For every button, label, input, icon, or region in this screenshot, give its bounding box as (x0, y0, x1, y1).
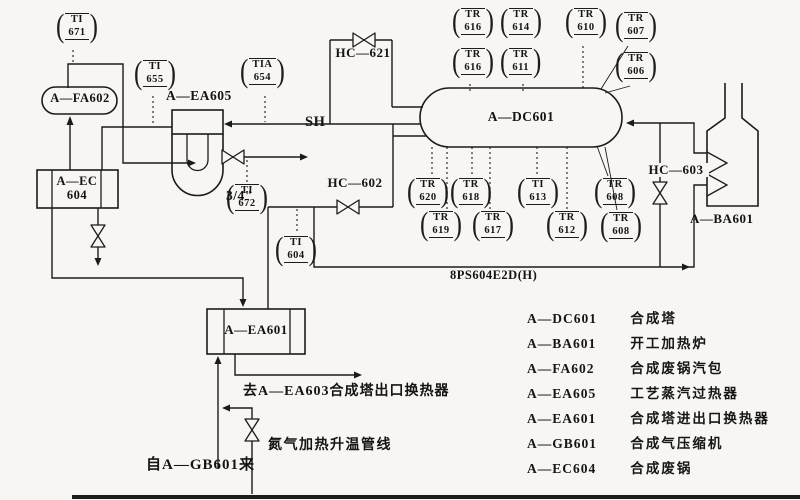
balloon-paren-right: ) (551, 175, 559, 208)
instrument-tag: TR (463, 179, 479, 192)
legend-row: A—EC604 合成废锅 (527, 456, 770, 481)
balloon-core: TR 612 (555, 211, 578, 238)
instrument-tag: TR (613, 213, 629, 226)
instrument-number: 620 (419, 192, 436, 205)
arrow-sh-out (300, 154, 308, 161)
instrument-balloon: ( TR 612 ) (546, 211, 588, 238)
instrument-balloon: ( TR 620 ) (407, 178, 449, 205)
instrument-number: 618 (462, 192, 479, 205)
legend-code: A—EC604 (527, 456, 615, 481)
balloon-core: TR 620 (416, 178, 439, 205)
instrument-tag: TR (465, 49, 481, 62)
instrument-balloon: ( TR 610 ) (565, 8, 607, 35)
arrow-into-dc601-right (626, 120, 634, 127)
instrument-tag: TR (559, 212, 575, 225)
instrument-balloon: ( TR 614 ) (500, 8, 542, 35)
balloon-paren-left: ( (275, 233, 283, 266)
instrument-number: 607 (627, 26, 644, 39)
instrument-number: 608 (606, 192, 623, 205)
balloon-paren-left: ( (600, 209, 608, 242)
pipe-ec604-gas-to-ea601 (52, 208, 243, 301)
balloon-paren-left: ( (56, 10, 64, 43)
instrument-number: 617 (484, 225, 501, 238)
instrument-tag: TR (465, 9, 481, 22)
legend-code: A—FA602 (527, 356, 615, 381)
balloon-paren-left: ( (500, 5, 508, 38)
balloon-paren-right: ) (580, 208, 588, 241)
instrument-balloon: ( TR 611 ) (500, 48, 541, 75)
balloon-paren-left: ( (517, 175, 525, 208)
balloon-paren-right: ) (506, 208, 514, 241)
instrument-balloon: ( TR 619 ) (420, 211, 462, 238)
balloon-paren-right: ) (486, 5, 494, 38)
arrow-into-ea605-tube (188, 160, 196, 167)
note-to-ea603: 去A—EA603合成塔出口换热器 (243, 384, 450, 399)
furnace-ba601-shape (707, 83, 758, 206)
instrument-tag: TI (71, 14, 83, 27)
arrow-header-to-furnace (682, 264, 690, 271)
instrument-balloon: ( TR 608 ) (594, 178, 636, 205)
instrument-number: 616 (464, 62, 481, 75)
instrument-number: 606 (627, 66, 644, 79)
arrow-up-into-fa602 (67, 116, 74, 125)
legend-row: A—GB601 合成气压缩机 (527, 431, 770, 456)
instrument-number: 610 (577, 22, 594, 35)
balloon-core: TIA 654 (249, 58, 275, 85)
label-ea605: A—EA605 (166, 89, 232, 104)
label-hc602: HC—602 (322, 176, 388, 190)
balloon-paren-left: ( (407, 175, 415, 208)
label-ec604-line1: A—EC (52, 175, 102, 189)
pipe-furnace-outlet-to-dc601 (632, 123, 707, 153)
balloon-paren-right: ) (533, 45, 541, 78)
legend-desc: 合成废锅 (630, 456, 692, 481)
label-ba601: A—BA601 (690, 212, 753, 226)
balloon-paren-right: ) (649, 49, 657, 82)
arrow-to-ea603 (354, 372, 362, 379)
label-line-number: 8PS604E2D(H) (450, 269, 537, 283)
label-dc601: A—DC601 (446, 110, 596, 125)
balloon-paren-left: ( (452, 45, 460, 78)
instrument-balloon: ( TI 604 ) (275, 236, 317, 263)
instrument-number: 612 (558, 225, 575, 238)
label-ec604-line2: 604 (52, 189, 102, 203)
arrow-into-ea605-box (224, 121, 232, 128)
valve-hc602 (337, 200, 359, 214)
instrument-balloon: ( TI 613 ) (517, 178, 559, 205)
valve-sh-34in (222, 150, 244, 164)
instrument-tag: TR (578, 9, 594, 22)
instrument-balloon: ( TR 606 ) (615, 52, 657, 79)
instrument-tag: TR (433, 212, 449, 225)
balloon-core: TR 614 (509, 8, 532, 35)
label-sh-steam: SH (305, 115, 325, 131)
instrument-tag: TIA (252, 59, 272, 72)
balloon-paren-left: ( (134, 57, 142, 90)
instrument-number: 619 (432, 225, 449, 238)
instrument-tag: TR (485, 212, 501, 225)
balloon-paren-left: ( (500, 45, 508, 78)
legend-desc: 合成塔进出口换热器 (630, 406, 770, 431)
balloon-paren-right: ) (277, 55, 285, 88)
balloon-paren-left: ( (452, 5, 460, 38)
instrument-balloon: ( TR 616 ) (452, 48, 494, 75)
instrument-balloon: ( TI 671 ) (56, 13, 98, 40)
instrument-balloon: ( TR 608 ) (600, 212, 642, 239)
balloon-paren-left: ( (472, 208, 480, 241)
balloon-paren-left: ( (594, 175, 602, 208)
instrument-balloon: ( TR 618 ) (450, 178, 492, 205)
instrument-number: 655 (146, 74, 163, 87)
balloon-core: TR 616 (461, 8, 484, 35)
arrow-n2-join (222, 405, 230, 412)
instrument-balloon: ( TR 607 ) (615, 12, 657, 39)
legend-code: A—EA605 (527, 381, 615, 406)
legend-row: A—DC601 合成塔 (527, 306, 770, 331)
legend-code: A—GB601 (527, 431, 615, 456)
balloon-paren-right: ) (454, 208, 462, 241)
legend-code: A—BA601 (527, 331, 615, 356)
instrument-tag: TR (513, 49, 529, 62)
instrument-tag: TR (513, 9, 529, 22)
balloon-paren-right: ) (484, 175, 492, 208)
instrument-tag: TR (607, 179, 623, 192)
balloon-core: TR 619 (429, 211, 452, 238)
balloon-core: TR 618 (459, 178, 482, 205)
instrument-number: 614 (512, 22, 529, 35)
furnace-coil (707, 152, 727, 196)
balloon-paren-left: ( (615, 9, 623, 42)
balloon-paren-right: ) (634, 209, 642, 242)
label-hc603: HC—603 (643, 163, 709, 177)
instrument-tag: TR (628, 13, 644, 26)
note-from-gb601: 自A—GB601来 (146, 457, 255, 474)
valve-nitrogen (245, 419, 259, 441)
legend-row: A—EA601 合成塔进出口换热器 (527, 406, 770, 431)
legend-code: A—DC601 (527, 306, 615, 331)
balloon-paren-right: ) (260, 181, 268, 214)
instrument-number: 616 (464, 22, 481, 35)
valve-hc603 (653, 182, 667, 204)
pid-diagram: ( TI 671 ) ( TI 655 ) ( TIA (0, 0, 800, 500)
instrument-number: 654 (254, 72, 271, 85)
balloon-core: TR 616 (461, 48, 484, 75)
balloon-core: TI 604 (284, 236, 307, 263)
arrow-down-into-ea601 (240, 299, 247, 307)
instrument-number: 671 (68, 27, 85, 40)
pipe-ea601-outlet-to-ea603 (235, 354, 356, 375)
note-nitrogen-line: 氮气加热升温管线 (268, 438, 392, 453)
balloon-paren-right: ) (486, 45, 494, 78)
balloon-paren-left: ( (546, 208, 554, 241)
instrument-number: 611 (512, 62, 529, 75)
instrument-number: 608 (612, 226, 629, 239)
superheater-ea605-shape (172, 110, 223, 196)
balloon-core: TR 606 (624, 52, 647, 79)
balloon-core: TI 613 (526, 178, 549, 205)
legend-desc: 合成气压缩机 (630, 431, 723, 456)
balloon-paren-right: ) (90, 10, 98, 43)
instrument-tag: TI (149, 61, 161, 74)
balloon-core: TR 611 (509, 48, 532, 75)
instrument-balloon: ( TR 616 ) (452, 8, 494, 35)
balloon-paren-left: ( (420, 208, 428, 241)
legend-row: A—EA605 工艺蒸汽过热器 (527, 381, 770, 406)
arrow-up-into-ea601 (215, 356, 222, 364)
balloon-paren-left: ( (240, 55, 248, 88)
instrument-balloon: ( TIA 654 ) (240, 58, 285, 85)
legend-desc: 合成废锅汽包 (630, 356, 723, 381)
instrument-balloon: ( TI 655 ) (134, 60, 176, 87)
legend-desc: 开工加热炉 (630, 331, 708, 356)
legend-row: A—FA602 合成废锅汽包 (527, 356, 770, 381)
balloon-core: TR 608 (609, 212, 632, 239)
instrument-number: 613 (529, 192, 546, 205)
legend-desc: 工艺蒸汽过热器 (630, 381, 739, 406)
valve-ec604-blowdown (91, 225, 105, 247)
balloon-paren-right: ) (628, 175, 636, 208)
balloon-paren-left: ( (450, 175, 458, 208)
balloon-core: TR 610 (574, 8, 597, 35)
equipment-legend: A—DC601 合成塔 A—BA601 开工加热炉 A—FA602 合成废锅汽包… (527, 306, 770, 481)
instrument-balloon: ( TR 617 ) (472, 211, 514, 238)
balloon-paren-right: ) (168, 57, 176, 90)
balloon-paren-right: ) (309, 233, 317, 266)
label-hc621: HC—621 (330, 46, 396, 60)
instrument-tag: TI (532, 179, 544, 192)
label-ea601: A—EA601 (209, 323, 303, 337)
legend-row: A—BA601 开工加热炉 (527, 331, 770, 356)
arrow-blowdown-down (95, 258, 102, 266)
balloon-core: TI 655 (143, 60, 166, 87)
balloon-core: TR 607 (624, 12, 647, 39)
legend-desc: 合成塔 (630, 306, 677, 331)
instrument-tag: TI (290, 237, 302, 250)
label-fa602: A—FA602 (44, 92, 116, 106)
balloon-paren-left: ( (565, 5, 573, 38)
scan-edge-artifact (72, 495, 800, 499)
balloon-core: TR 608 (603, 178, 626, 205)
balloon-paren-right: ) (534, 5, 542, 38)
instrument-tag: TR (420, 179, 436, 192)
balloon-paren-right: ) (599, 5, 607, 38)
label-valve-size: 3/4" (226, 189, 253, 204)
instrument-tag: TR (628, 53, 644, 66)
balloon-paren-left: ( (615, 49, 623, 82)
legend-code: A—EA601 (527, 406, 615, 431)
balloon-core: TR 617 (481, 211, 504, 238)
balloon-paren-right: ) (649, 9, 657, 42)
instrument-number: 604 (287, 250, 304, 263)
balloon-core: TI 671 (65, 13, 88, 40)
balloon-paren-right: ) (441, 175, 449, 208)
